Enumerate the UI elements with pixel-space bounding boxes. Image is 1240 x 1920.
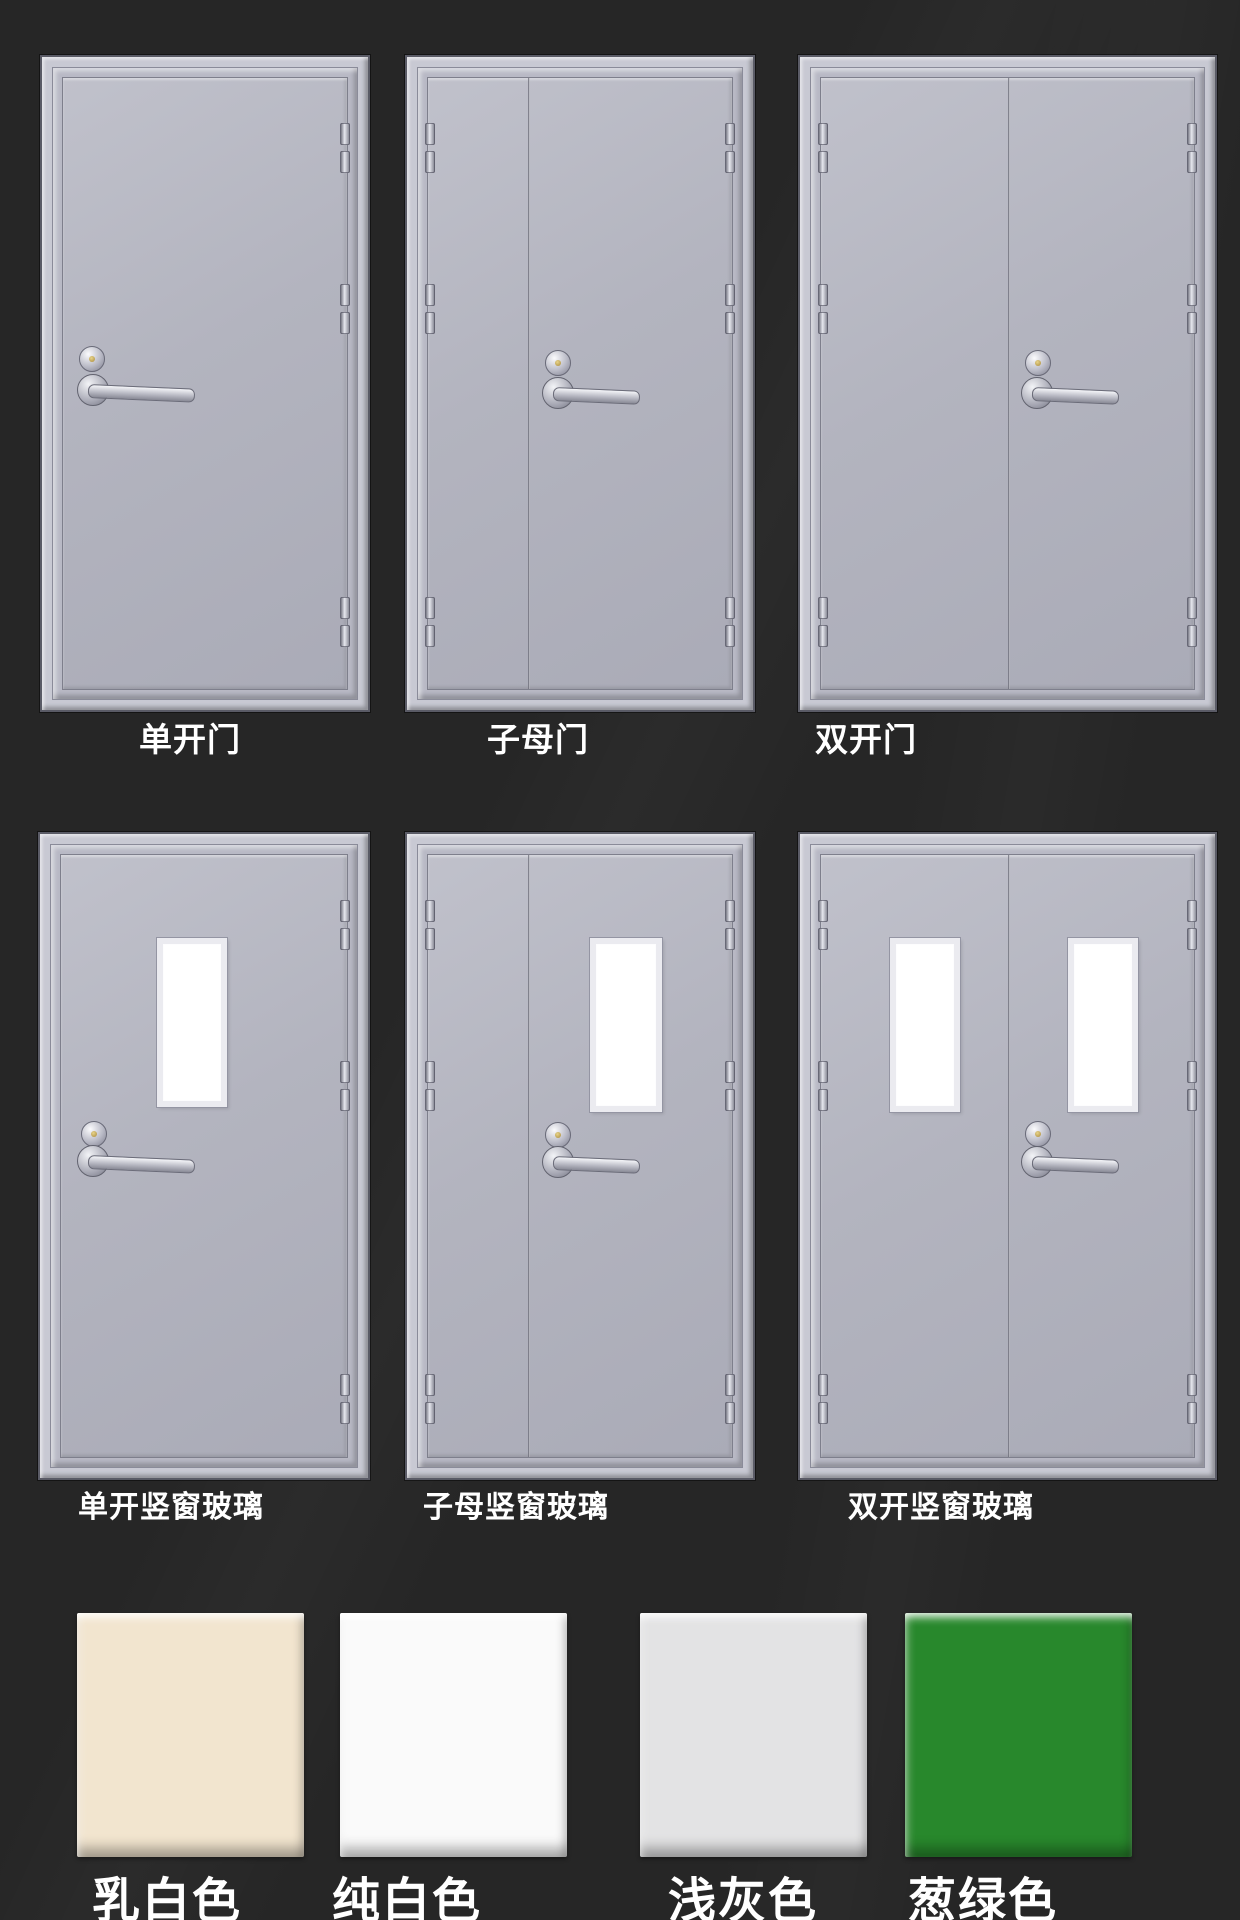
- product-image-panel: 单开门 子母门 双开门: [0, 0, 1240, 1920]
- door-frame: [417, 844, 743, 1468]
- color-label-light-gray: 浅灰色: [668, 1878, 818, 1920]
- door-frame: [50, 844, 358, 1468]
- door-hinge: [1187, 123, 1197, 173]
- door-frame: [810, 67, 1205, 700]
- door-card-double: [798, 55, 1217, 712]
- door-window: [890, 938, 960, 1112]
- door-hinge: [818, 1061, 828, 1111]
- lock-cylinder: [1025, 350, 1051, 376]
- door-card-double-glass: [798, 832, 1217, 1480]
- color-label-pure-white: 纯白色: [332, 1878, 482, 1920]
- door-hinge: [340, 123, 350, 173]
- door-window: [1068, 938, 1138, 1112]
- door-hinge: [340, 1374, 350, 1424]
- door-hinge: [818, 597, 828, 647]
- door-hinge: [340, 900, 350, 950]
- door-hinge: [725, 900, 735, 950]
- lock-cylinder: [1025, 1121, 1051, 1147]
- door-label-single: 单开门: [139, 723, 241, 756]
- door-leaf: [62, 77, 348, 690]
- door-hinge: [425, 1061, 435, 1111]
- door-label-mother-child-glass: 子母竖窗玻璃: [423, 1493, 609, 1523]
- door-seam: [1008, 855, 1010, 1457]
- color-swatch-green: [905, 1613, 1132, 1857]
- door-leaf: [60, 854, 348, 1458]
- door-window: [590, 938, 662, 1112]
- color-swatch-pure-white: [340, 1613, 567, 1857]
- door-window: [157, 938, 227, 1107]
- door-label-mother-child: 子母门: [487, 723, 589, 756]
- door-card-mother-child: [405, 55, 755, 712]
- door-hinge: [1187, 1374, 1197, 1424]
- door-frame: [810, 844, 1205, 1468]
- door-hinge: [725, 1374, 735, 1424]
- door-hinge: [818, 1374, 828, 1424]
- door-hinge: [425, 284, 435, 334]
- lock-cylinder: [81, 1121, 107, 1147]
- color-swatch-light-gray: [640, 1613, 867, 1857]
- door-hinge: [425, 1374, 435, 1424]
- door-hinge: [340, 284, 350, 334]
- door-seam: [528, 78, 530, 689]
- door-hinge: [425, 123, 435, 173]
- door-card-single-glass: [38, 832, 370, 1480]
- door-label-double-glass: 双开竖窗玻璃: [848, 1493, 1034, 1523]
- door-hinge: [1187, 900, 1197, 950]
- door-hinge: [340, 597, 350, 647]
- door-hinge: [725, 1061, 735, 1111]
- door-seam: [528, 855, 530, 1457]
- door-hinge: [1187, 284, 1197, 334]
- door-frame: [52, 67, 358, 700]
- door-hinge: [340, 1061, 350, 1111]
- door-label-double: 双开门: [815, 723, 917, 756]
- door-hinge: [818, 900, 828, 950]
- door-card-mother-child-glass: [405, 832, 755, 1480]
- door-card-single: [40, 55, 370, 712]
- door-seam: [1008, 78, 1010, 689]
- door-leaf: [427, 854, 733, 1458]
- door-frame: [417, 67, 743, 700]
- door-leaf: [820, 77, 1195, 690]
- door-hinge: [425, 597, 435, 647]
- color-label-milky-white: 乳白色: [92, 1878, 242, 1920]
- color-label-green: 葱绿色: [908, 1878, 1058, 1920]
- door-hinge: [725, 284, 735, 334]
- lock-cylinder: [79, 346, 105, 372]
- door-hinge: [1187, 597, 1197, 647]
- door-hinge: [1187, 1061, 1197, 1111]
- door-leaf: [820, 854, 1195, 1458]
- color-swatch-milky-white: [77, 1613, 304, 1857]
- door-label-single-glass: 单开竖窗玻璃: [78, 1493, 264, 1523]
- door-hinge: [725, 123, 735, 173]
- door-hinge: [425, 900, 435, 950]
- door-hinge: [818, 123, 828, 173]
- door-hinge: [725, 597, 735, 647]
- lock-cylinder: [545, 350, 571, 376]
- door-leaf: [427, 77, 733, 690]
- door-hinge: [818, 284, 828, 334]
- lock-cylinder: [545, 1122, 571, 1148]
